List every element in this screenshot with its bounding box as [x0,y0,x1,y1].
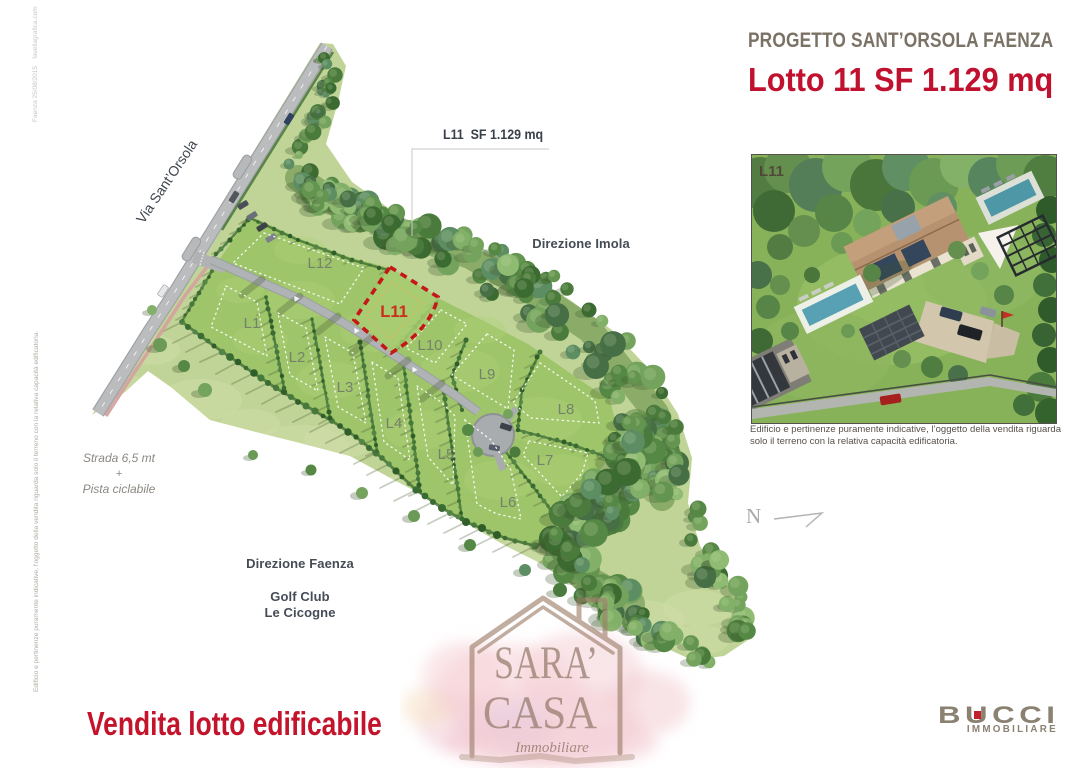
svg-text:L11: L11 [759,163,784,180]
svg-text:SARA’: SARA’ [494,637,598,689]
svg-text:Immobiliare: Immobiliare [514,740,589,756]
svg-text:CASA: CASA [483,687,597,739]
